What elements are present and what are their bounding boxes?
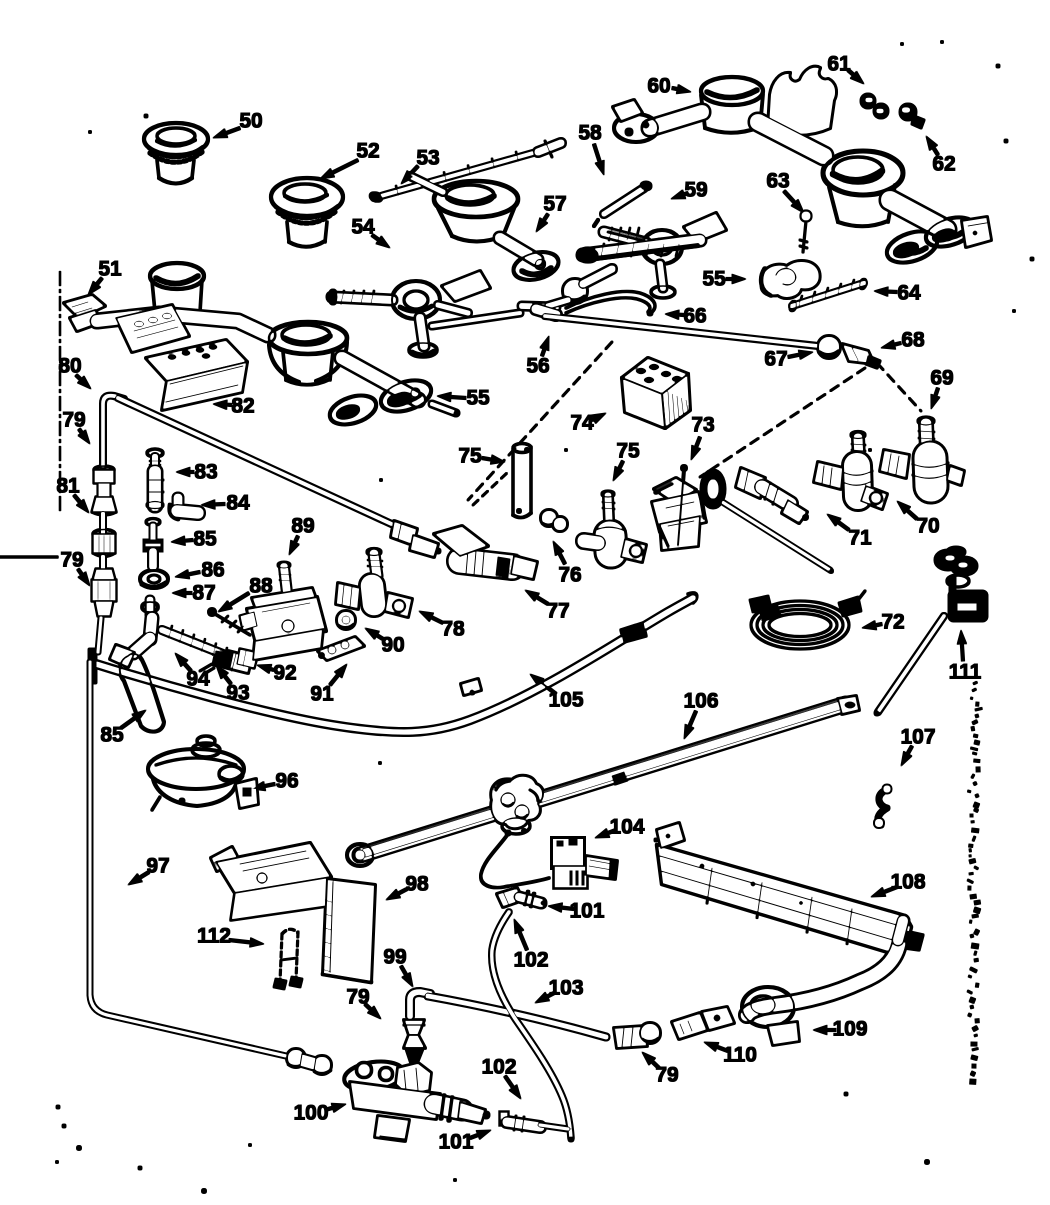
svg-text:78: 78 xyxy=(441,618,465,641)
svg-text:108: 108 xyxy=(890,871,925,894)
svg-text:52: 52 xyxy=(356,140,379,163)
svg-text:79: 79 xyxy=(62,409,85,432)
svg-text:102: 102 xyxy=(513,949,548,972)
svg-text:101: 101 xyxy=(569,900,604,923)
svg-text:106: 106 xyxy=(683,690,718,713)
svg-text:69: 69 xyxy=(930,367,953,390)
svg-text:97: 97 xyxy=(146,855,169,878)
svg-text:68: 68 xyxy=(901,329,925,352)
svg-text:58: 58 xyxy=(578,122,602,145)
svg-text:72: 72 xyxy=(881,611,904,634)
svg-text:87: 87 xyxy=(192,582,215,605)
svg-text:112: 112 xyxy=(197,925,231,948)
svg-text:74: 74 xyxy=(570,412,594,435)
svg-text:75: 75 xyxy=(616,440,640,463)
svg-text:102: 102 xyxy=(481,1056,516,1079)
svg-text:103: 103 xyxy=(548,977,583,1000)
svg-text:70: 70 xyxy=(916,515,939,538)
svg-text:91: 91 xyxy=(310,683,334,706)
svg-text:93: 93 xyxy=(226,682,249,705)
svg-text:79: 79 xyxy=(60,549,83,572)
svg-text:63: 63 xyxy=(766,170,789,193)
svg-text:66: 66 xyxy=(683,305,706,328)
svg-text:101: 101 xyxy=(438,1131,473,1154)
svg-text:89: 89 xyxy=(291,515,314,538)
svg-text:55: 55 xyxy=(702,268,726,291)
svg-text:90: 90 xyxy=(381,634,404,657)
svg-text:55: 55 xyxy=(466,387,490,410)
svg-text:67: 67 xyxy=(764,348,787,371)
svg-text:104: 104 xyxy=(609,816,644,839)
svg-text:81: 81 xyxy=(56,475,80,498)
svg-text:83: 83 xyxy=(194,461,217,484)
svg-text:50: 50 xyxy=(239,110,262,133)
svg-text:109: 109 xyxy=(832,1018,867,1041)
svg-text:53: 53 xyxy=(416,147,439,170)
svg-text:99: 99 xyxy=(383,946,406,969)
svg-text:107: 107 xyxy=(900,726,935,749)
svg-text:60: 60 xyxy=(647,75,670,98)
svg-text:98: 98 xyxy=(405,873,429,896)
svg-text:73: 73 xyxy=(691,414,714,437)
svg-text:56: 56 xyxy=(526,355,549,378)
svg-text:111: 111 xyxy=(949,661,982,684)
svg-text:54: 54 xyxy=(351,216,375,239)
svg-text:71: 71 xyxy=(848,527,872,550)
svg-text:51: 51 xyxy=(98,258,122,281)
svg-text:75: 75 xyxy=(458,445,482,468)
svg-text:92: 92 xyxy=(273,662,296,685)
svg-text:57: 57 xyxy=(543,193,566,216)
svg-text:62: 62 xyxy=(932,153,955,176)
svg-text:77: 77 xyxy=(546,600,569,623)
svg-text:76: 76 xyxy=(558,564,581,587)
svg-text:59: 59 xyxy=(684,179,707,202)
svg-text:82: 82 xyxy=(231,395,254,418)
svg-text:86: 86 xyxy=(201,559,224,582)
svg-text:85: 85 xyxy=(193,528,217,551)
svg-text:64: 64 xyxy=(897,282,921,305)
svg-text:100: 100 xyxy=(293,1102,328,1125)
svg-text:110: 110 xyxy=(723,1044,757,1067)
svg-text:96: 96 xyxy=(275,770,298,793)
svg-text:88: 88 xyxy=(249,575,273,598)
svg-text:80: 80 xyxy=(58,355,81,378)
svg-text:84: 84 xyxy=(226,492,250,515)
svg-text:61: 61 xyxy=(827,53,851,76)
